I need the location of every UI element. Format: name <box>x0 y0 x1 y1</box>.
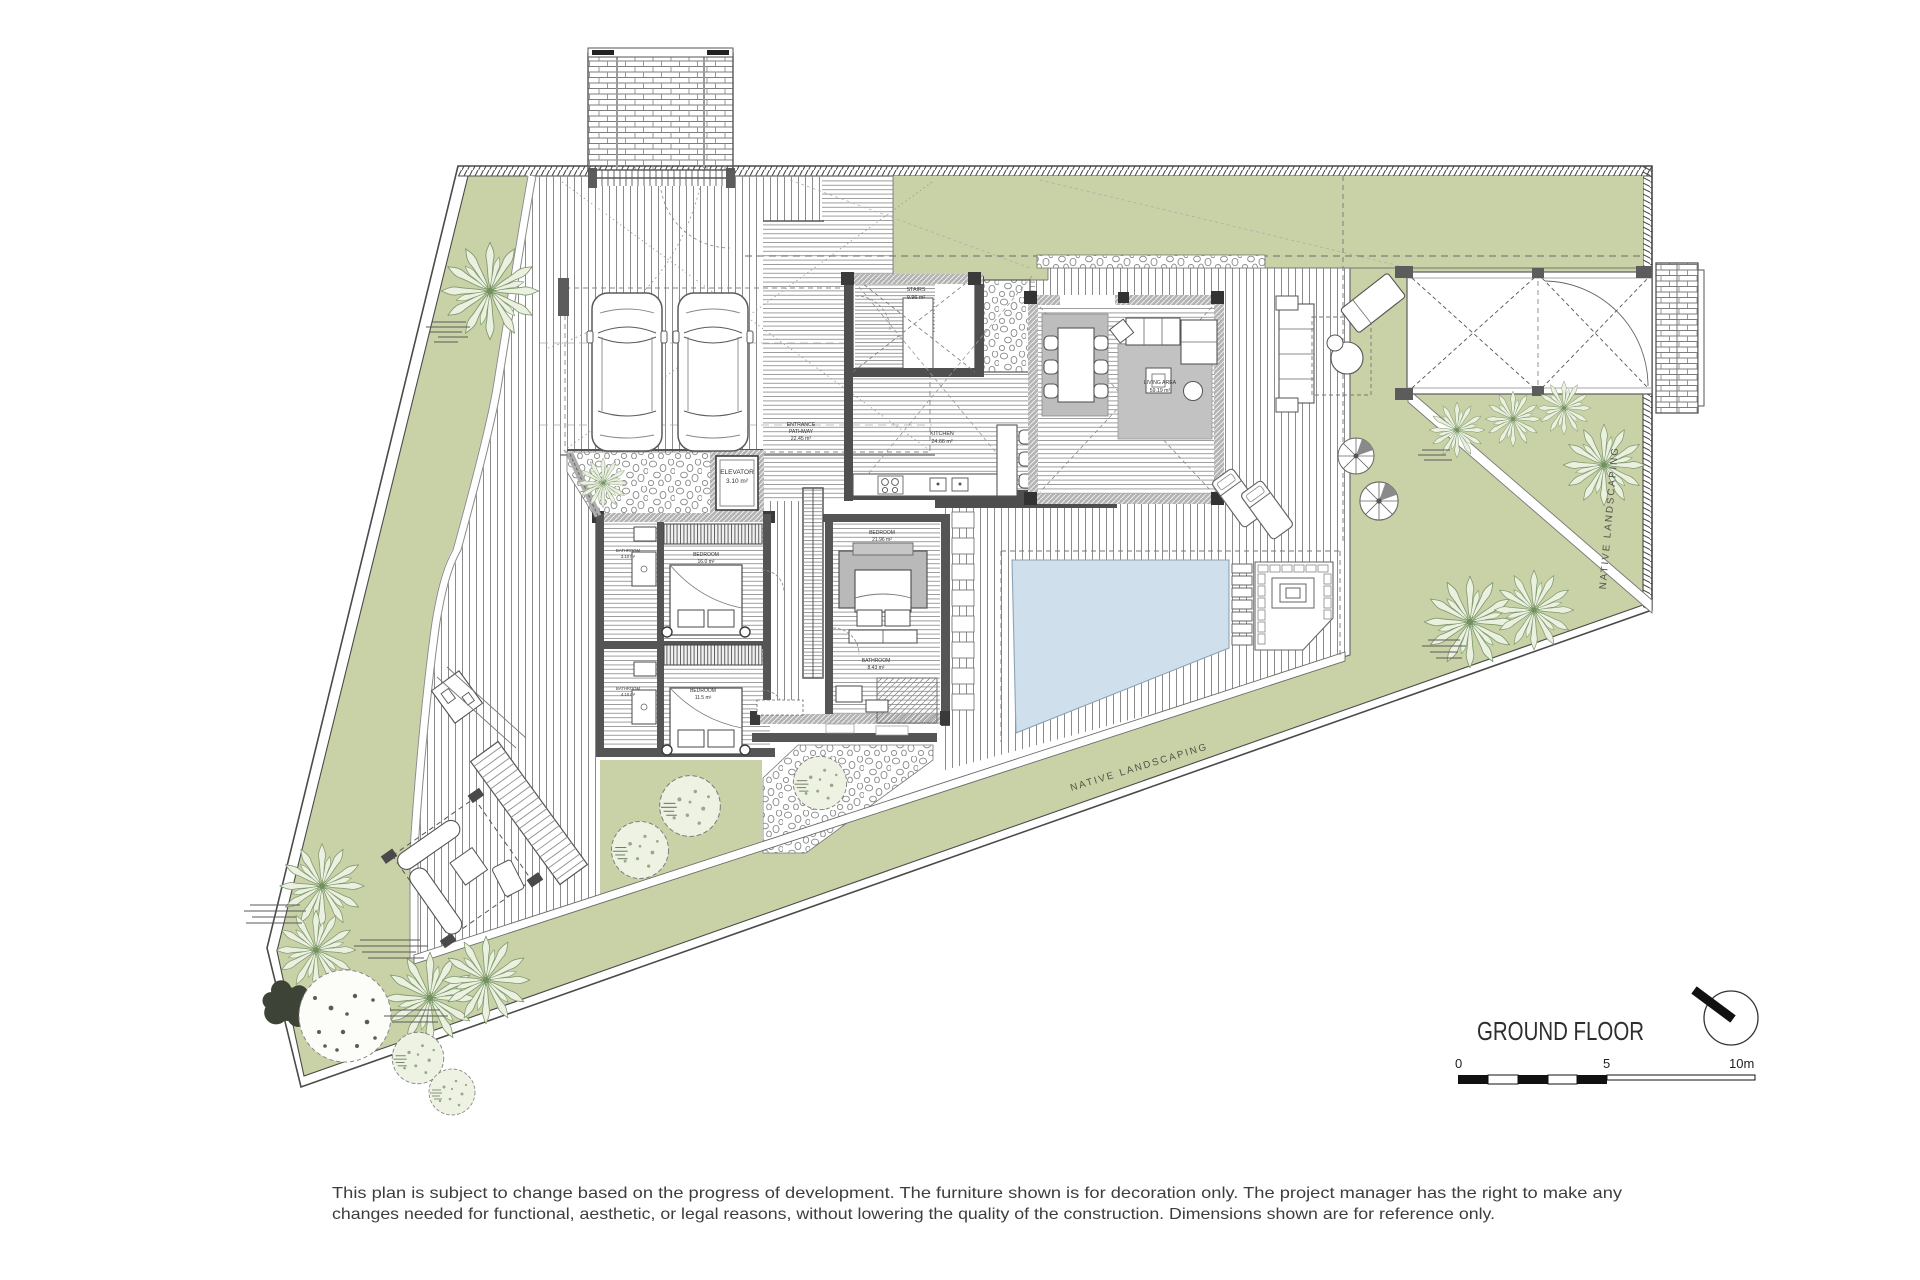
svg-text:11.5 m²: 11.5 m² <box>695 695 712 701</box>
svg-text:BEDROOM: BEDROOM <box>693 552 719 558</box>
svg-text:BEDROOM: BEDROOM <box>869 530 895 536</box>
svg-text:ENTRANCE: ENTRANCE <box>787 422 816 428</box>
svg-text:9.96 m²: 9.96 m² <box>907 295 925 301</box>
svg-text:4.10 m²: 4.10 m² <box>621 692 636 697</box>
svg-text:10m: 10m <box>1729 1056 1754 1071</box>
svg-text:BATHROOM: BATHROOM <box>616 686 640 691</box>
svg-text:STAIRS: STAIRS <box>906 287 925 293</box>
svg-text:GROUND FLOOR: GROUND FLOOR <box>1477 1016 1644 1046</box>
svg-text:3.10 m²: 3.10 m² <box>726 478 749 485</box>
svg-text:PATHWAY: PATHWAY <box>789 429 814 435</box>
svg-text:24.66 m²: 24.66 m² <box>931 439 952 445</box>
svg-text:21.96 m²: 21.96 m² <box>872 537 892 543</box>
svg-text:BATHROOM: BATHROOM <box>616 548 640 553</box>
svg-text:22.45 m²: 22.45 m² <box>791 436 812 442</box>
svg-text:changes needed for functional,: changes needed for functional, aesthetic… <box>332 1206 1495 1223</box>
svg-text:16.0 m²: 16.0 m² <box>698 559 715 565</box>
svg-text:59.19 m²: 59.19 m² <box>1150 388 1171 394</box>
svg-text:LIVING AREA: LIVING AREA <box>1144 380 1177 386</box>
svg-text:ELEVATOR: ELEVATOR <box>720 469 754 476</box>
svg-text:0: 0 <box>1455 1056 1462 1071</box>
svg-text:BEDROOM: BEDROOM <box>690 688 716 694</box>
svg-text:This plan is subject to change: This plan is subject to change based on … <box>332 1185 1622 1202</box>
svg-text:5: 5 <box>1603 1056 1610 1071</box>
svg-text:BATHROOM: BATHROOM <box>862 658 891 664</box>
svg-text:3.10 m²: 3.10 m² <box>621 554 636 559</box>
svg-text:8.43 m²: 8.43 m² <box>868 665 885 671</box>
svg-text:KITCHEN: KITCHEN <box>930 431 954 437</box>
